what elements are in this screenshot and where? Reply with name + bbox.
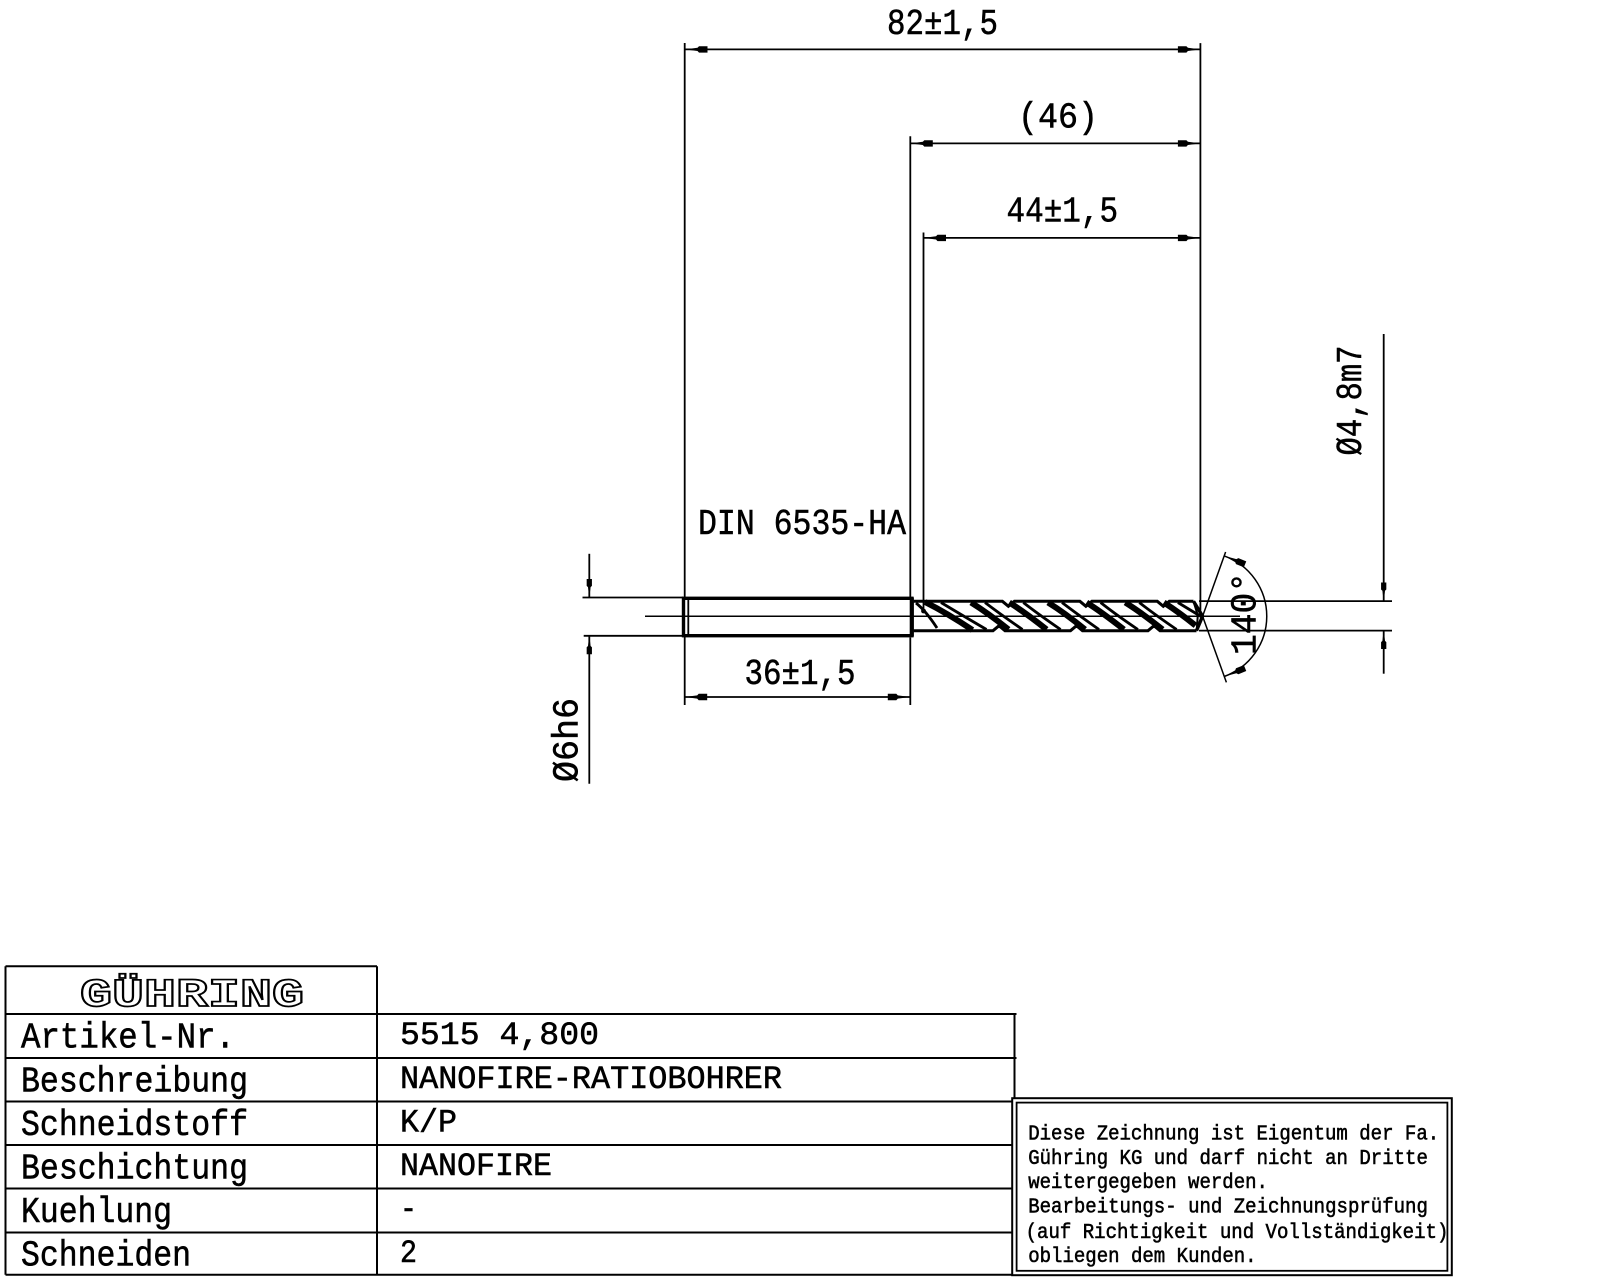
svg-text:Ø4,8m7: Ø4,8m7 [1331, 346, 1372, 456]
svg-text:K/P: K/P [400, 1104, 457, 1141]
svg-text:Kuehlung: Kuehlung [21, 1192, 172, 1233]
svg-text:Beschreibung: Beschreibung [21, 1061, 248, 1102]
svg-text:NANOFIRE: NANOFIRE [400, 1148, 552, 1185]
svg-text:Ø6h6: Ø6h6 [548, 698, 589, 782]
svg-text:GÜHRING: GÜHRING [80, 973, 304, 1018]
svg-text:obliegen dem Kunden.: obliegen dem Kunden. [1028, 1245, 1256, 1269]
svg-text:36±1,5: 36±1,5 [745, 654, 856, 695]
svg-text:(auf Richtigkeit und Vollständ: (auf Richtigkeit und Vollständigkeit) [1026, 1221, 1449, 1245]
svg-text:-: - [400, 1191, 417, 1228]
svg-text:Gühring KG und darf nicht an D: Gühring KG und darf nicht an Dritte [1028, 1147, 1428, 1171]
svg-text:DIN 6535-HA: DIN 6535-HA [698, 504, 906, 545]
svg-text:Bearbeitungs- und Zeichnungspr: Bearbeitungs- und Zeichnungsprüfung [1028, 1196, 1428, 1220]
svg-text:Diese Zeichnung ist Eigentum d: Diese Zeichnung ist Eigentum der Fa. [1028, 1123, 1439, 1147]
svg-text:Schneiden: Schneiden [21, 1236, 191, 1277]
svg-text:5515 4,800: 5515 4,800 [400, 1017, 599, 1054]
svg-text:Artikel-Nr.: Artikel-Nr. [21, 1018, 235, 1059]
svg-text:NANOFIRE-RATIOBOHRER: NANOFIRE-RATIOBOHRER [400, 1061, 782, 1098]
svg-text:2: 2 [400, 1235, 417, 1272]
svg-text:weitergegeben werden.: weitergegeben werden. [1028, 1171, 1268, 1195]
svg-text:44±1,5: 44±1,5 [1007, 192, 1119, 233]
svg-text:82±1,5: 82±1,5 [887, 4, 998, 45]
svg-text:Beschichtung: Beschichtung [21, 1148, 248, 1189]
svg-text:(46): (46) [1018, 97, 1098, 138]
svg-text:Schneidstoff: Schneidstoff [21, 1105, 248, 1146]
